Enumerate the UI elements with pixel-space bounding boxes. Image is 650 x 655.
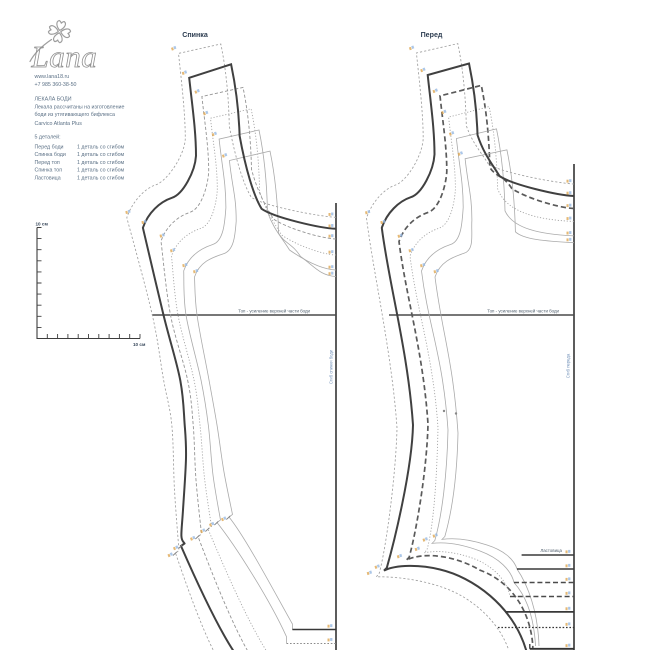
svg-text:Carvico Atlanta Plus: Carvico Atlanta Plus [35,121,83,127]
svg-text:Топ - усиление верхней части б: Топ - усиление верхней части боди [238,309,310,314]
svg-text:Сгиб спинки боди: Сгиб спинки боди [329,349,334,384]
svg-text:5 деталей:: 5 деталей: [35,134,61,141]
svg-text:Перед: Перед [421,31,443,39]
svg-text:www.lana18.ru: www.lana18.ru [35,74,70,80]
svg-text:10 см: 10 см [133,342,146,347]
svg-text:Сгиб переда: Сгиб переда [566,353,571,378]
svg-text:+7 985 360-38-50: +7 985 360-38-50 [35,82,77,88]
svg-text:Перед боди: Перед боди [35,144,64,150]
svg-text:Спинка: Спинка [182,31,208,39]
svg-text:Ластовица: Ластовица [35,175,61,181]
svg-text:Ластовица: Ластовица [540,548,562,553]
svg-text:1 деталь со сгибом: 1 деталь со сгибом [77,152,125,158]
svg-text:ЛЕКАЛА БОДИ: ЛЕКАЛА БОДИ [35,97,72,103]
svg-text:1 деталь со сгибом: 1 деталь со сгибом [77,160,125,166]
svg-text:1 деталь со сгибом: 1 деталь со сгибом [77,175,125,181]
svg-text:боди из утягивающего бифлекса: боди из утягивающего бифлекса [35,112,116,118]
svg-text:Топ - усиление верхней части б: Топ - усиление верхней части боди [487,309,559,314]
svg-text:Lana: Lana [31,39,98,74]
svg-text:10 см: 10 см [36,222,49,227]
svg-text:1 деталь со сгибом: 1 деталь со сгибом [77,168,125,174]
svg-text:Лекала рассчитаны на изготовле: Лекала рассчитаны на изготовление [35,104,125,110]
svg-text:Перед топ: Перед топ [35,160,60,166]
svg-text:1 деталь со сгибом: 1 деталь со сгибом [77,144,125,150]
svg-text:Спинка топ: Спинка топ [35,168,63,174]
svg-text:Спинка боди: Спинка боди [35,152,66,158]
